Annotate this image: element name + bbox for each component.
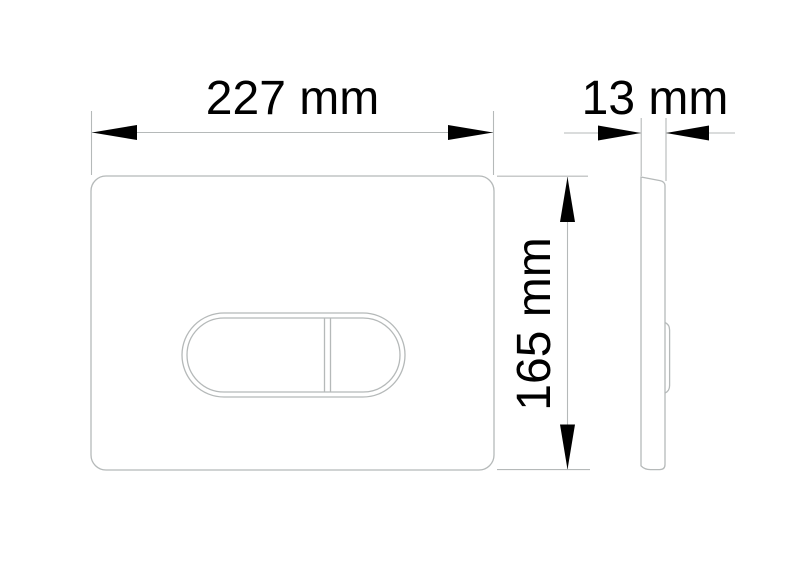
plate-outline [91,176,494,470]
width-dimension-label: 227 mm [206,72,379,125]
height-dimension-label: 165 mm [508,237,561,410]
side-button-bump-outline [665,323,670,394]
depth-arrow-left-icon [598,126,641,141]
depth-dimension-label: 13 mm [582,72,729,125]
flush-button-inner-outline [187,318,400,392]
flush-button-outer-outline [182,313,405,397]
depth-dimension: 13 mm [564,72,735,181]
technical-drawing: 227 mm 13 mm 165 mm [0,0,800,566]
side-profile-outline [641,177,665,470]
front-view [91,176,494,470]
side-view [641,177,670,470]
height-arrow-down-icon [560,425,575,470]
width-arrow-left-icon [92,125,137,140]
height-arrow-up-icon [560,177,575,222]
drawing-page: 227 mm 13 mm 165 mm [0,0,800,566]
depth-arrow-right-icon [666,126,709,141]
height-dimension: 165 mm [497,176,590,469]
width-dimension: 227 mm [92,72,494,175]
width-arrow-right-icon [448,125,493,140]
